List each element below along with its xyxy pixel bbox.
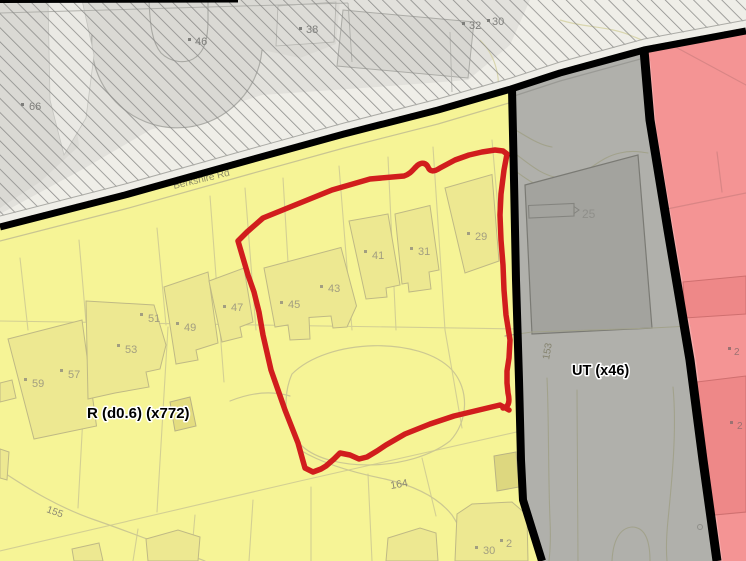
- svg-text:51: 51: [148, 313, 160, 325]
- svg-text:41: 41: [372, 250, 384, 262]
- svg-text:43: 43: [328, 283, 340, 295]
- svg-text:29: 29: [475, 231, 487, 243]
- svg-text:46: 46: [195, 36, 207, 48]
- svg-text:45: 45: [288, 299, 300, 311]
- svg-text:47: 47: [231, 302, 243, 314]
- svg-text:UT (x46): UT (x46): [572, 363, 629, 379]
- svg-text:31: 31: [418, 246, 430, 258]
- svg-text:59: 59: [32, 378, 44, 390]
- svg-text:66: 66: [29, 101, 41, 113]
- svg-text:32: 32: [469, 20, 481, 32]
- svg-text:57: 57: [68, 369, 80, 381]
- svg-text:2: 2: [506, 538, 512, 550]
- svg-text:25: 25: [582, 207, 596, 221]
- svg-text:2: 2: [734, 347, 740, 358]
- svg-text:30: 30: [483, 545, 495, 557]
- svg-text:53: 53: [125, 344, 137, 356]
- svg-text:49: 49: [184, 322, 196, 334]
- svg-text:R (d0.6) (x772): R (d0.6) (x772): [87, 405, 190, 422]
- svg-text:2: 2: [737, 421, 743, 432]
- svg-text:38: 38: [306, 24, 318, 36]
- svg-text:30: 30: [492, 16, 504, 28]
